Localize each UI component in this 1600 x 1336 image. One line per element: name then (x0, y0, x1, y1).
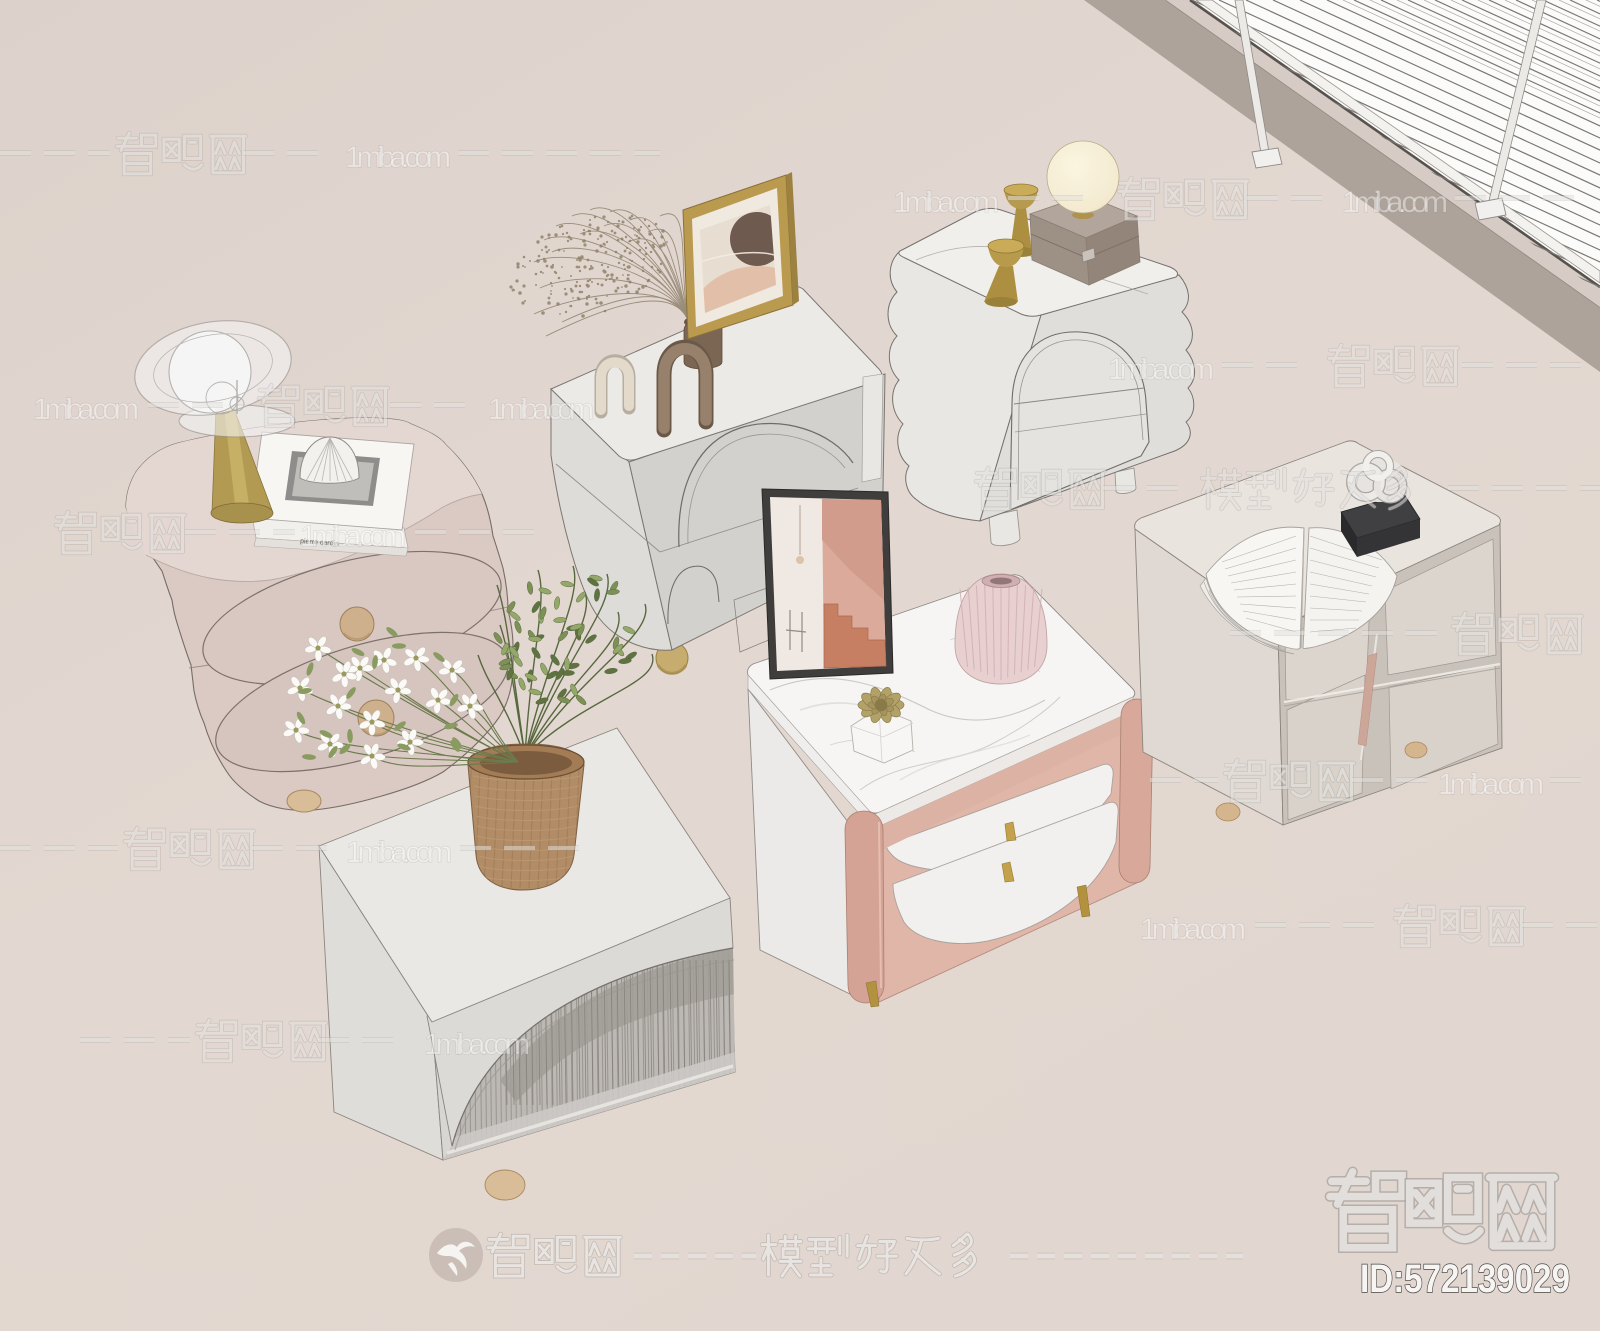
svg-text:1miba.com: 1miba.com (1438, 768, 1544, 801)
svg-text:1miba.com: 1miba.com (1140, 913, 1246, 946)
svg-text:1miba.com: 1miba.com (488, 393, 594, 426)
svg-text:1miba.com: 1miba.com (300, 520, 406, 553)
svg-text:1miba.com: 1miba.com (346, 836, 452, 869)
svg-text:1miba.com: 1miba.com (893, 186, 999, 219)
svg-text:1miba.com: 1miba.com (424, 1028, 530, 1061)
svg-text:1miba.com: 1miba.com (33, 393, 139, 426)
svg-text:1miba.com: 1miba.com (1342, 186, 1448, 219)
svg-text:ID:572139029: ID:572139029 (1360, 1257, 1570, 1301)
svg-text:1miba.com: 1miba.com (345, 141, 451, 174)
svg-text:1miba.com: 1miba.com (1108, 353, 1214, 386)
